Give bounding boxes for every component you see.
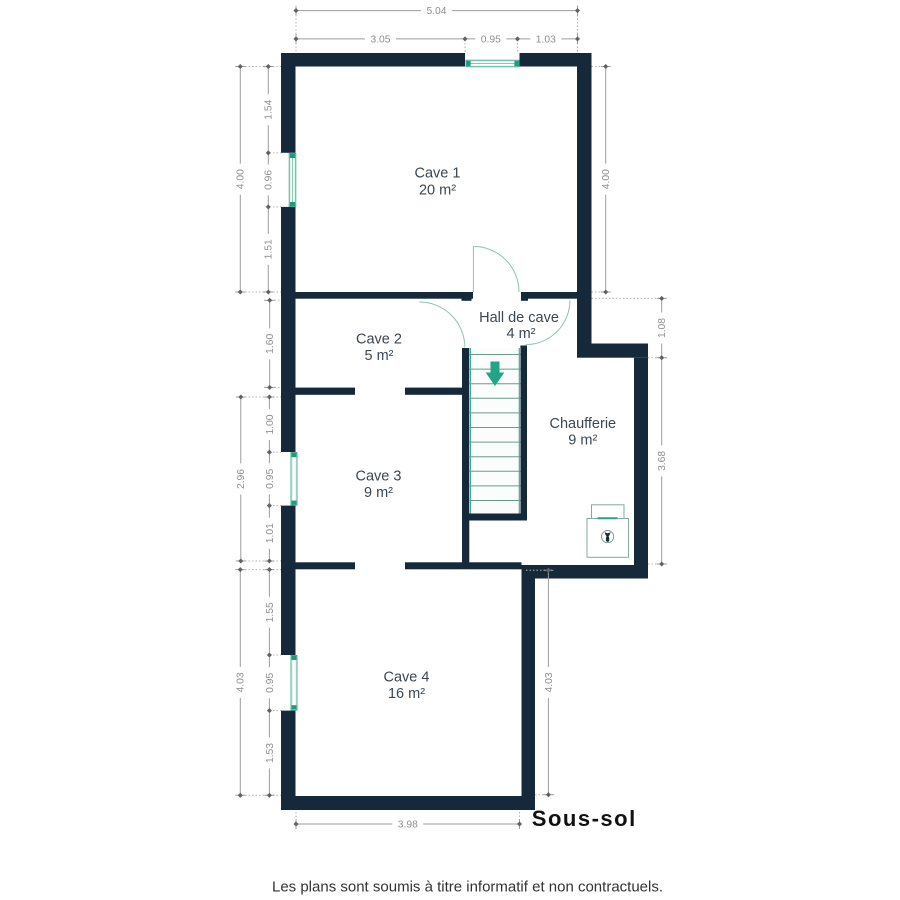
svg-text:4.00: 4.00 bbox=[601, 169, 612, 189]
svg-text:3.68: 3.68 bbox=[657, 451, 668, 471]
svg-text:9 m²: 9 m² bbox=[568, 433, 597, 449]
svg-text:20 m²: 20 m² bbox=[419, 183, 456, 199]
svg-text:Les plans sont soumis à titre: Les plans sont soumis à titre informatif… bbox=[272, 879, 663, 896]
svg-text:4 m²: 4 m² bbox=[507, 326, 536, 342]
svg-text:3.05: 3.05 bbox=[370, 34, 390, 45]
svg-text:1.00: 1.00 bbox=[265, 414, 276, 434]
svg-text:1.54: 1.54 bbox=[264, 99, 275, 119]
svg-text:1.03: 1.03 bbox=[536, 34, 556, 45]
svg-text:3.98: 3.98 bbox=[398, 819, 418, 830]
svg-text:0.96: 0.96 bbox=[264, 170, 275, 190]
svg-text:4.00: 4.00 bbox=[236, 169, 247, 189]
svg-text:Chaufferie: Chaufferie bbox=[549, 416, 616, 432]
svg-text:Cave 4: Cave 4 bbox=[384, 669, 430, 685]
svg-text:Cave 3: Cave 3 bbox=[356, 469, 402, 485]
svg-text:1.01: 1.01 bbox=[265, 523, 276, 543]
svg-text:Sous-sol: Sous-sol bbox=[532, 806, 637, 831]
svg-text:2.96: 2.96 bbox=[236, 469, 247, 489]
svg-text:0.95: 0.95 bbox=[265, 469, 276, 489]
svg-text:1.53: 1.53 bbox=[265, 743, 276, 763]
svg-text:4.03: 4.03 bbox=[544, 672, 555, 692]
svg-text:5.04: 5.04 bbox=[426, 6, 446, 17]
svg-text:1.55: 1.55 bbox=[265, 602, 276, 622]
svg-text:0.95: 0.95 bbox=[481, 34, 501, 45]
svg-text:1.08: 1.08 bbox=[657, 318, 668, 338]
svg-text:16 m²: 16 m² bbox=[388, 686, 425, 702]
svg-text:Cave 1: Cave 1 bbox=[415, 166, 461, 182]
svg-text:4.03: 4.03 bbox=[236, 672, 247, 692]
svg-text:Hall de cave: Hall de cave bbox=[479, 310, 559, 326]
svg-text:0.95: 0.95 bbox=[265, 673, 276, 693]
svg-text:1.60: 1.60 bbox=[265, 334, 276, 354]
svg-text:1.51: 1.51 bbox=[264, 239, 275, 259]
svg-text:5 m²: 5 m² bbox=[365, 348, 394, 364]
svg-text:9 m²: 9 m² bbox=[364, 485, 393, 501]
svg-text:Cave 2: Cave 2 bbox=[356, 332, 402, 348]
